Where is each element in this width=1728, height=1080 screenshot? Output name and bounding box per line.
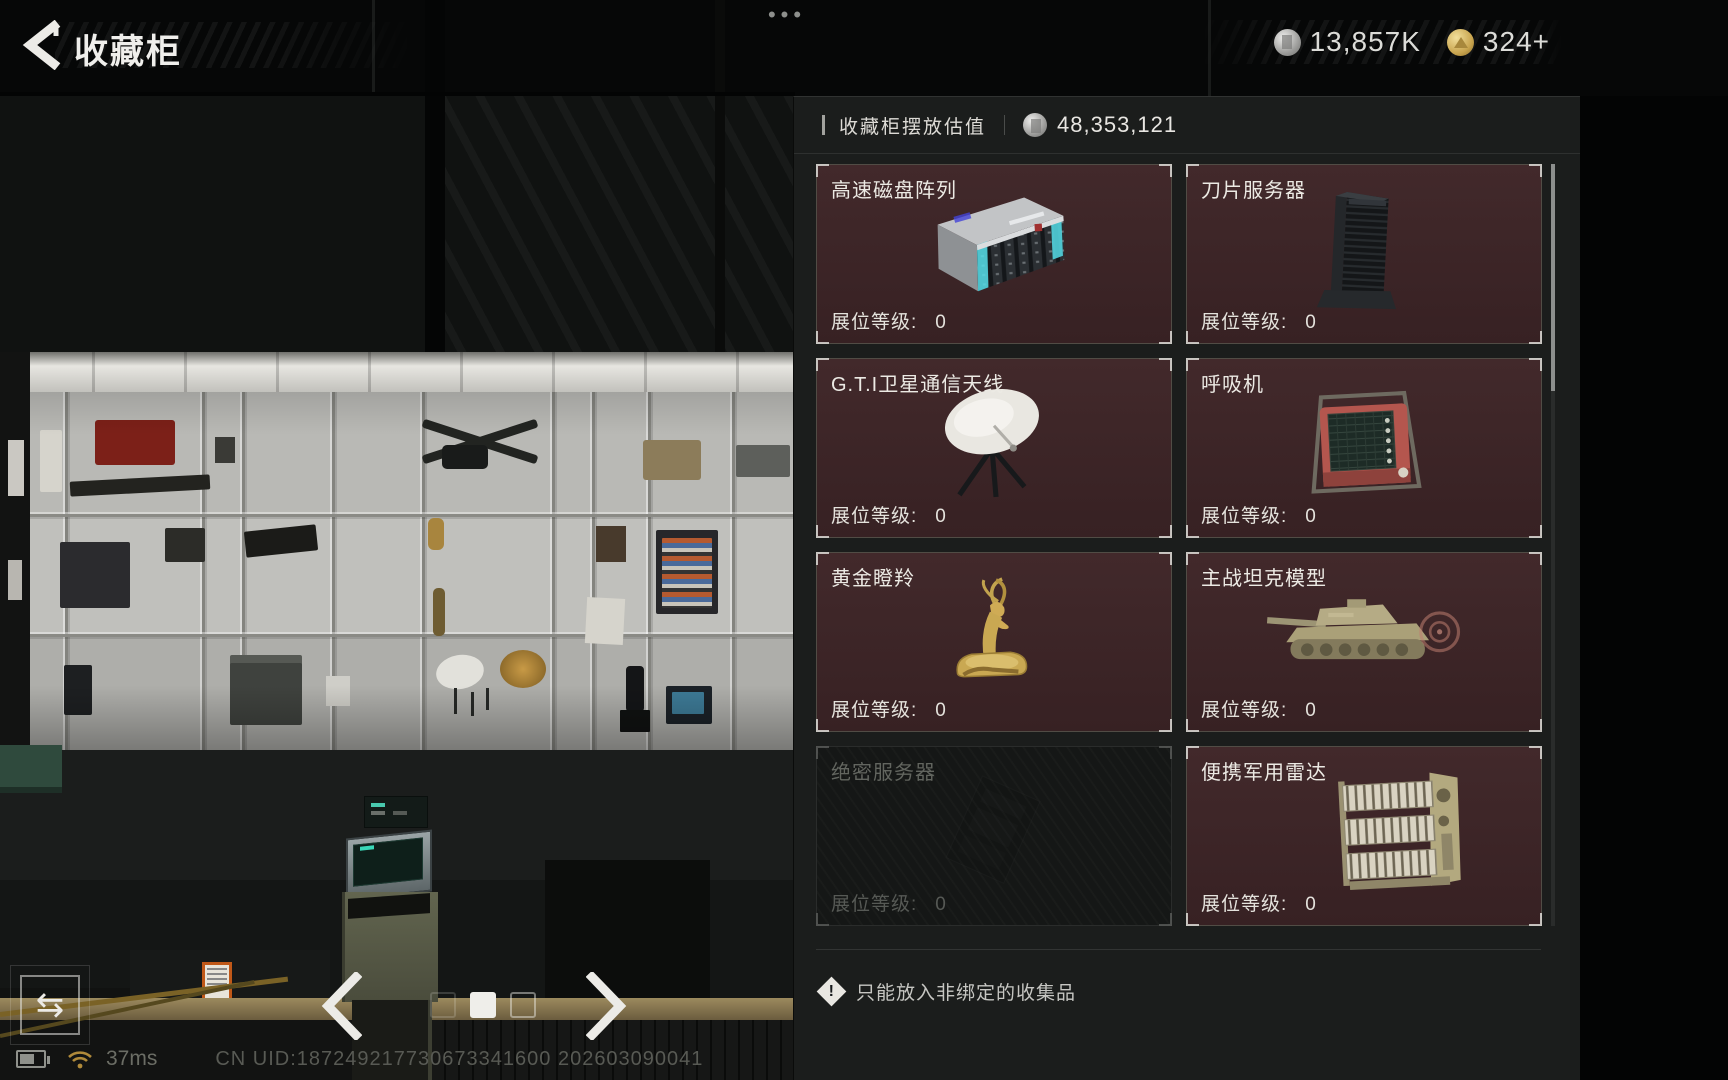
wall-item <box>585 597 625 645</box>
collection-cabinet-screen: 收藏柜 ••• 13,857K 324+ 收藏柜摆放估值 48,353,121 … <box>0 0 1728 1080</box>
warning-icon: ! <box>817 976 847 1006</box>
card-level: 展位等级:0 <box>831 695 947 722</box>
card-title: 主战坦克模型 <box>1201 562 1327 591</box>
wall-item <box>8 440 24 496</box>
card-corner <box>816 552 829 565</box>
wall-item <box>442 445 488 469</box>
collection-card[interactable]: 便携军用雷达展位等级:0 <box>1186 746 1542 926</box>
card-title: 黄金瞪羚 <box>831 562 915 591</box>
wall-item <box>70 474 211 496</box>
currency-silver[interactable]: 13,857K <box>1274 26 1421 58</box>
wall-grid-line <box>648 392 651 750</box>
wall-grid-line <box>242 392 245 750</box>
card-title: 刀片服务器 <box>1201 174 1306 203</box>
ceiling-seam <box>425 0 445 352</box>
wall-grid-line <box>30 514 795 517</box>
estimate-value: 48,353,121 <box>1023 112 1177 138</box>
header-separator <box>1004 115 1005 135</box>
wall-grid-line <box>30 634 795 637</box>
warning-row: ! 只能放入非绑定的收集品 <box>821 971 1076 1011</box>
ping-value: 37ms <box>106 1047 157 1071</box>
silver-coin-icon <box>1274 29 1301 56</box>
card-level: 展位等级:0 <box>1201 307 1317 334</box>
wall-item <box>433 588 445 636</box>
satellite-antenna-icon <box>817 381 1171 503</box>
collection-card[interactable]: 刀片服务器展位等级:0 <box>1186 164 1542 344</box>
card-corner <box>1159 719 1172 732</box>
wall-item <box>230 663 302 725</box>
currency-bar: 13,857K 324+ <box>1195 22 1550 62</box>
card-corner <box>1529 331 1542 344</box>
ceiling-seam <box>0 92 795 96</box>
wall-item <box>244 524 318 557</box>
card-level: 展位等级:0 <box>1201 501 1317 528</box>
card-level: 展位等级:0 <box>831 501 947 528</box>
card-corner <box>1529 552 1542 565</box>
card-corner <box>816 913 829 926</box>
ceiling-seam <box>715 0 725 352</box>
back-button[interactable] <box>20 20 66 70</box>
display-wall <box>30 392 795 750</box>
swap-icon: ⇆ <box>36 988 65 1022</box>
card-corner <box>816 358 829 371</box>
card-corner <box>1186 746 1199 759</box>
card-corner <box>816 331 829 344</box>
wall-grid-line <box>592 392 595 750</box>
wifi-icon <box>66 1048 94 1070</box>
tank-model-icon <box>1187 575 1541 697</box>
console-sign <box>364 796 428 828</box>
scrollbar-thumb[interactable] <box>1551 164 1555 391</box>
panel-divider <box>816 949 1541 950</box>
wall-item <box>454 688 457 714</box>
safe-box <box>0 745 62 793</box>
swap-view-button[interactable]: ⇆ <box>20 975 80 1035</box>
card-corner <box>1159 358 1172 371</box>
wall-item <box>666 686 712 724</box>
collection-card[interactable]: 高速磁盘阵列展位等级:0 <box>816 164 1172 344</box>
page-title: 收藏柜 <box>74 24 182 73</box>
card-corner <box>1186 358 1199 371</box>
collection-panel: 收藏柜摆放估值 48,353,121 高速磁盘阵列展位等级:0刀片服务器展位等级… <box>793 96 1580 1080</box>
collection-card[interactable]: G.T.I卫星通信天线展位等级:0 <box>816 358 1172 538</box>
card-corner <box>1159 913 1172 926</box>
wall-item <box>736 445 790 477</box>
card-level: 展位等级:0 <box>831 307 947 334</box>
wall-item <box>422 419 539 465</box>
wall-item <box>662 538 712 608</box>
collection-card[interactable]: 黄金瞪羚展位等级:0 <box>816 552 1172 732</box>
wall-item <box>486 688 489 710</box>
wall-item <box>596 526 626 562</box>
wall-item <box>656 530 718 614</box>
wall-grid-line <box>65 392 68 750</box>
card-corner <box>1186 331 1199 344</box>
disk-array-icon <box>817 187 1171 309</box>
scrollbar[interactable] <box>1551 164 1555 926</box>
card-corner <box>1159 746 1172 759</box>
card-title: 绝密服务器 <box>831 756 936 785</box>
military-radar-icon <box>1187 769 1541 891</box>
page-indicator[interactable] <box>430 992 456 1018</box>
card-corner <box>1186 164 1199 177</box>
card-corner <box>816 164 829 177</box>
card-level: 展位等级:0 <box>831 889 947 916</box>
gold-currency-value: 324+ <box>1483 26 1550 58</box>
blade-server-icon <box>1187 187 1541 309</box>
wall-grid-line <box>552 392 555 750</box>
console-screen <box>346 829 432 900</box>
card-corner <box>1159 331 1172 344</box>
wall-item <box>500 650 546 688</box>
wall-item <box>8 560 22 600</box>
card-corner <box>1529 746 1542 759</box>
currency-gold[interactable]: 324+ <box>1447 26 1550 58</box>
card-title: 呼吸机 <box>1201 368 1264 397</box>
page-indicator[interactable] <box>470 992 496 1018</box>
chevron-right-icon <box>586 972 628 1040</box>
wall-item <box>230 655 302 669</box>
silver-coin-icon <box>1023 113 1047 137</box>
collection-card[interactable]: 主战坦克模型展位等级:0 <box>1186 552 1542 732</box>
wall-item <box>60 542 130 608</box>
wall-item <box>326 676 350 706</box>
card-corner <box>1529 164 1542 177</box>
card-corner <box>1529 358 1542 371</box>
warning-text: 只能放入非绑定的收集品 <box>856 978 1076 1005</box>
wall-item <box>95 420 175 465</box>
card-title: 便携军用雷达 <box>1201 756 1327 785</box>
page-indicator-group <box>430 992 536 1018</box>
card-corner <box>816 746 829 759</box>
battery-icon <box>16 1050 46 1068</box>
chevron-left-icon <box>320 972 362 1040</box>
card-corner <box>1159 164 1172 177</box>
card-corner <box>1529 719 1542 732</box>
card-corner <box>1529 913 1542 926</box>
card-corner <box>816 525 829 538</box>
wall-item <box>215 437 235 463</box>
collection-card[interactable]: 呼吸机展位等级:0 <box>1186 358 1542 538</box>
back-chevron-icon <box>20 20 66 70</box>
wall-grid-line <box>732 392 735 750</box>
card-corner <box>1159 552 1172 565</box>
card-corner <box>1186 719 1199 732</box>
ventilator-icon <box>1187 381 1541 503</box>
wall-light-strip <box>0 352 795 392</box>
wall-item <box>64 665 92 715</box>
next-page-button[interactable] <box>586 972 628 1040</box>
wall-item <box>626 666 644 712</box>
card-corner <box>1186 525 1199 538</box>
card-corner <box>1186 552 1199 565</box>
wall-grid-line <box>422 392 425 750</box>
card-corner <box>1529 525 1542 538</box>
card-title: G.T.I卫星通信天线 <box>831 368 1004 397</box>
card-level: 展位等级:0 <box>1201 695 1317 722</box>
card-corner <box>1186 913 1199 926</box>
prev-page-button[interactable] <box>320 972 362 1040</box>
collection-grid: 高速磁盘阵列展位等级:0刀片服务器展位等级:0G.T.I卫星通信天线展位等级:0… <box>816 164 1542 926</box>
secret-server-icon <box>817 769 1171 891</box>
left-shelf-column <box>0 352 30 750</box>
uid-text: CN UID:187249217730673341600 20260309004… <box>215 1048 703 1071</box>
panel-header: 收藏柜摆放估值 48,353,121 <box>794 97 1580 154</box>
right-dark-margin <box>1580 96 1728 1080</box>
wall-item <box>471 692 474 716</box>
wall-item <box>643 440 701 480</box>
gold-coin-icon <box>1447 29 1474 56</box>
card-title: 高速磁盘阵列 <box>831 174 957 203</box>
wall-item <box>433 651 486 693</box>
card-level: 展位等级:0 <box>1201 889 1317 916</box>
menu-dots-button[interactable]: ••• <box>755 2 819 30</box>
wall-item <box>672 692 704 714</box>
silver-currency-value: 13,857K <box>1310 26 1421 58</box>
estimate-label: 收藏柜摆放估值 <box>839 112 986 139</box>
page-indicator[interactable] <box>510 992 536 1018</box>
wall-item <box>428 518 444 550</box>
wall-item <box>422 419 539 465</box>
golden-gazelle-icon <box>817 575 1171 697</box>
ceiling-struts <box>428 96 795 352</box>
card-corner <box>1159 525 1172 538</box>
status-bar: 37ms CN UID:187249217730673341600 202603… <box>0 1038 793 1080</box>
header-tick <box>822 115 825 135</box>
wall-grid-line <box>202 392 205 750</box>
wall-item <box>165 528 205 562</box>
collection-card[interactable]: 绝密服务器展位等级:0 <box>816 746 1172 926</box>
wall-item <box>40 430 62 492</box>
wall-item <box>620 710 650 732</box>
card-corner <box>816 719 829 732</box>
wall-grid-line <box>332 392 335 750</box>
